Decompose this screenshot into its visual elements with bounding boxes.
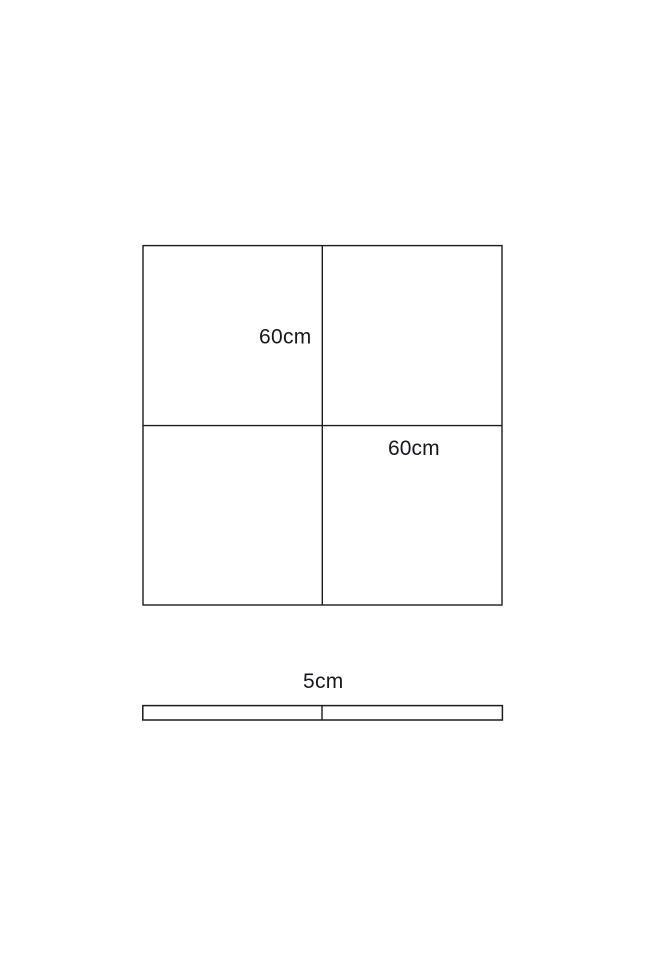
svg-text:60cm: 60cm [259, 326, 312, 349]
svg-text:5cm: 5cm [303, 670, 344, 693]
svg-text:60cm: 60cm [388, 437, 440, 460]
